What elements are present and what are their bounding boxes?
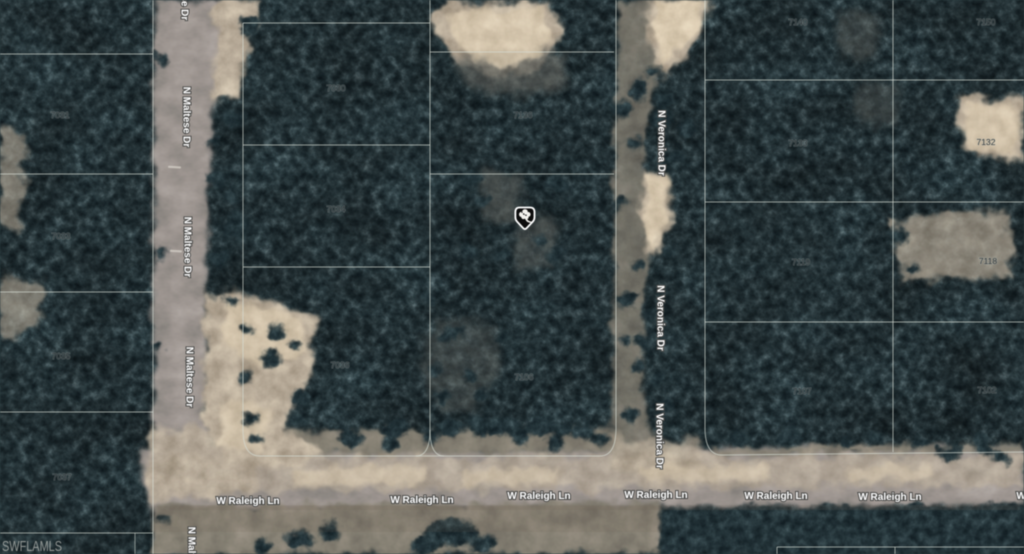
svg-text:7119: 7119: [792, 257, 811, 267]
svg-text:W Raleigh Ln: W Raleigh Ln: [624, 490, 687, 501]
svg-text:7031: 7031: [51, 110, 70, 120]
svg-text:7030: 7030: [327, 83, 346, 93]
svg-text:W Raleigh Ln: W Raleigh Ln: [390, 495, 453, 506]
svg-text:W Raleigh Ln: W Raleigh Ln: [507, 491, 570, 502]
svg-text:7033: 7033: [52, 231, 71, 241]
svg-text:N Veronica Dr: N Veronica Dr: [655, 285, 666, 351]
svg-text:7107: 7107: [793, 386, 812, 396]
svg-text:W Raleigh Ln: W Raleigh Ln: [858, 492, 921, 503]
svg-text:W Raleigh Ln: W Raleigh Ln: [216, 496, 279, 507]
svg-text:7150: 7150: [977, 17, 996, 27]
svg-text:7120: 7120: [515, 229, 534, 239]
svg-text:7140: 7140: [789, 17, 808, 27]
svg-text:N Maltese Dr: N Maltese Dr: [186, 527, 197, 554]
svg-text:7106: 7106: [515, 372, 534, 382]
svg-text:SWFLAMLS: SWFLAMLS: [2, 538, 62, 554]
svg-text:N Maltese Dr: N Maltese Dr: [179, 0, 190, 20]
svg-text:N Veronica Dr: N Veronica Dr: [654, 403, 665, 469]
svg-text:7118: 7118: [979, 256, 998, 266]
svg-text:7035: 7035: [52, 351, 71, 361]
svg-text:W Raleigh Ln: W Raleigh Ln: [1016, 491, 1024, 502]
svg-text:7132: 7132: [977, 137, 996, 147]
svg-text:W Raleigh Ln: W Raleigh Ln: [744, 491, 807, 502]
svg-text:N Maltese Dr: N Maltese Dr: [181, 87, 192, 148]
svg-text:7102: 7102: [978, 385, 997, 395]
svg-text:N Veronica Dr: N Veronica Dr: [656, 110, 667, 176]
svg-text:7034: 7034: [327, 204, 346, 214]
svg-text:N Maltese Dr: N Maltese Dr: [182, 217, 193, 278]
svg-text:7037: 7037: [53, 472, 72, 482]
svg-text:7133: 7133: [789, 138, 808, 148]
svg-text:7136: 7136: [514, 110, 533, 120]
svg-text:N Maltese Dr: N Maltese Dr: [184, 347, 195, 408]
svg-text:7036: 7036: [331, 360, 350, 370]
